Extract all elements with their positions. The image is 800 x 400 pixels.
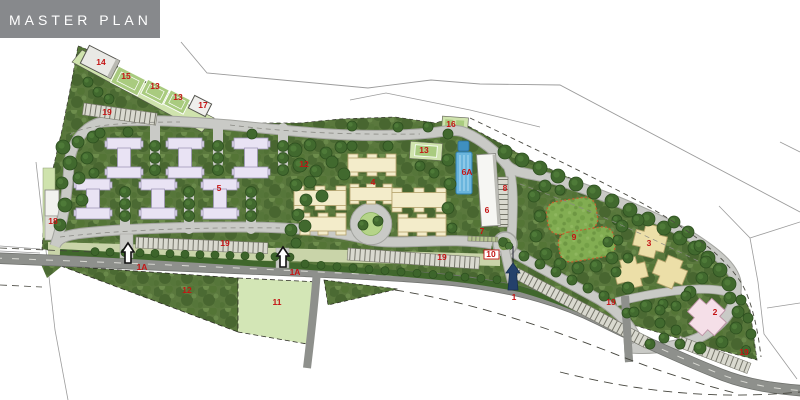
svg-text:19: 19 <box>220 238 230 248</box>
svg-text:13: 13 <box>173 92 183 102</box>
svg-text:17: 17 <box>198 100 208 110</box>
svg-text:1: 1 <box>512 292 517 302</box>
svg-text:1A: 1A <box>137 262 148 272</box>
svg-text:16: 16 <box>446 119 456 129</box>
svg-text:19: 19 <box>606 297 616 307</box>
svg-text:7: 7 <box>480 226 485 236</box>
svg-text:15: 15 <box>121 71 131 81</box>
svg-text:12: 12 <box>299 159 309 169</box>
svg-text:1A: 1A <box>290 267 301 277</box>
svg-text:11: 11 <box>273 297 282 307</box>
svg-text:6A: 6A <box>462 167 473 177</box>
svg-text:19: 19 <box>102 107 112 117</box>
svg-text:3: 3 <box>647 238 652 248</box>
svg-text:13: 13 <box>150 81 160 91</box>
svg-text:8: 8 <box>503 183 508 193</box>
svg-text:MASTER PLAN: MASTER PLAN <box>9 12 152 28</box>
svg-text:19: 19 <box>739 347 749 357</box>
svg-text:10: 10 <box>486 249 496 259</box>
svg-text:13: 13 <box>419 145 429 155</box>
svg-text:19: 19 <box>437 252 447 262</box>
svg-text:9: 9 <box>572 232 577 242</box>
svg-text:6: 6 <box>485 205 490 215</box>
svg-text:4: 4 <box>371 177 376 187</box>
svg-text:12: 12 <box>182 285 192 295</box>
svg-text:2: 2 <box>713 307 718 317</box>
svg-text:18: 18 <box>48 216 58 226</box>
svg-text:14: 14 <box>96 57 106 67</box>
svg-text:5: 5 <box>217 183 222 193</box>
